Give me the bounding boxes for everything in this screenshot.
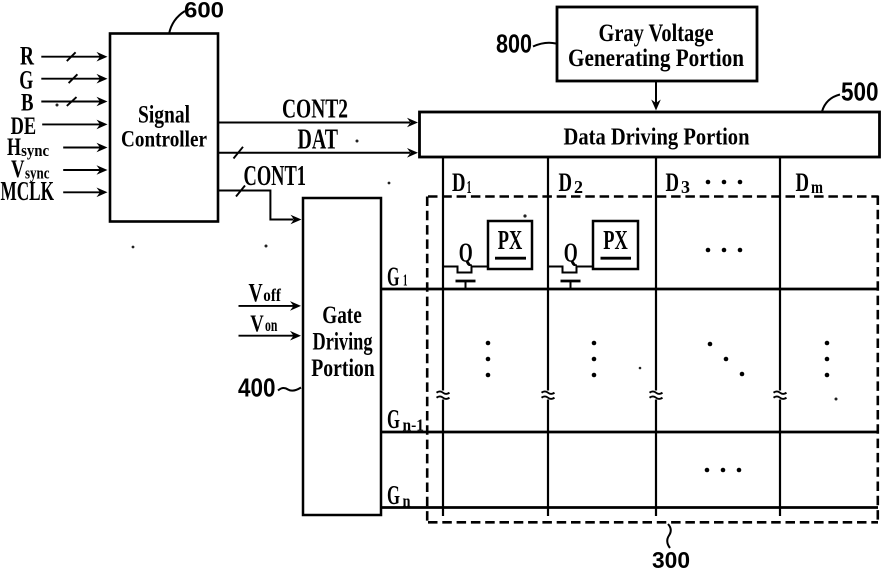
svg-text:600: 600 (184, 0, 224, 23)
svg-text:sync: sync (21, 141, 49, 160)
svg-text:1: 1 (403, 271, 408, 290)
svg-text:m: m (811, 177, 823, 197)
svg-text:PX: PX (498, 225, 523, 255)
svg-text:800: 800 (496, 29, 532, 59)
svg-text:V: V (250, 312, 264, 338)
svg-text:CONT2: CONT2 (282, 94, 348, 124)
svg-text:on: on (265, 315, 277, 335)
svg-text:1: 1 (467, 177, 472, 197)
svg-text:Gray Voltage: Gray Voltage (599, 20, 714, 47)
svg-text:PX: PX (603, 225, 628, 255)
svg-text:Q: Q (564, 237, 578, 267)
svg-text:G: G (387, 480, 400, 510)
svg-text:D: D (559, 168, 573, 197)
svg-text:Data Driving Portion: Data Driving Portion (564, 125, 750, 151)
svg-text:n: n (403, 492, 411, 511)
svg-text:V: V (249, 279, 263, 308)
svg-text:CONT1: CONT1 (244, 161, 307, 192)
svg-text:Q: Q (459, 237, 473, 267)
svg-text:D: D (666, 168, 680, 197)
svg-text:off: off (263, 285, 281, 305)
svg-text:500: 500 (841, 79, 879, 107)
svg-text:Signal: Signal (138, 101, 190, 128)
svg-text:D: D (796, 168, 810, 197)
svg-text:Driving: Driving (313, 327, 373, 356)
svg-text:Generating Portion: Generating Portion (568, 45, 744, 72)
svg-text:3: 3 (681, 177, 690, 197)
svg-text:300: 300 (652, 547, 690, 569)
svg-text:D: D (452, 168, 466, 197)
svg-text:Gate: Gate (322, 300, 362, 329)
svg-text:Portion: Portion (311, 353, 375, 382)
svg-text:2: 2 (574, 177, 583, 197)
svg-text:Controller: Controller (121, 127, 207, 153)
svg-text:DAT: DAT (298, 125, 339, 156)
svg-text:400: 400 (238, 374, 276, 402)
svg-text:G: G (387, 404, 400, 434)
svg-text:n-1: n-1 (403, 416, 425, 435)
svg-text:G: G (387, 261, 400, 291)
svg-text:MCLK: MCLK (1, 176, 55, 206)
